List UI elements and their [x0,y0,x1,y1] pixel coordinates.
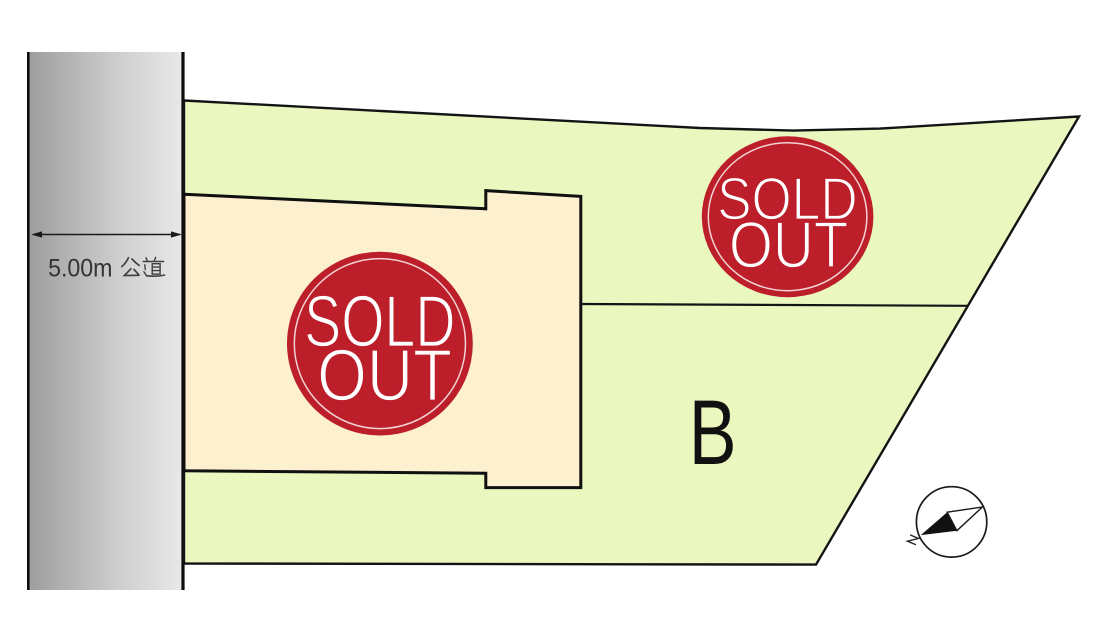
svg-text:OUT: OUT [729,209,849,282]
svg-text:B: B [689,380,737,484]
svg-text:OUT: OUT [317,335,452,416]
svg-text:5.00m: 5.00m [48,255,112,282]
